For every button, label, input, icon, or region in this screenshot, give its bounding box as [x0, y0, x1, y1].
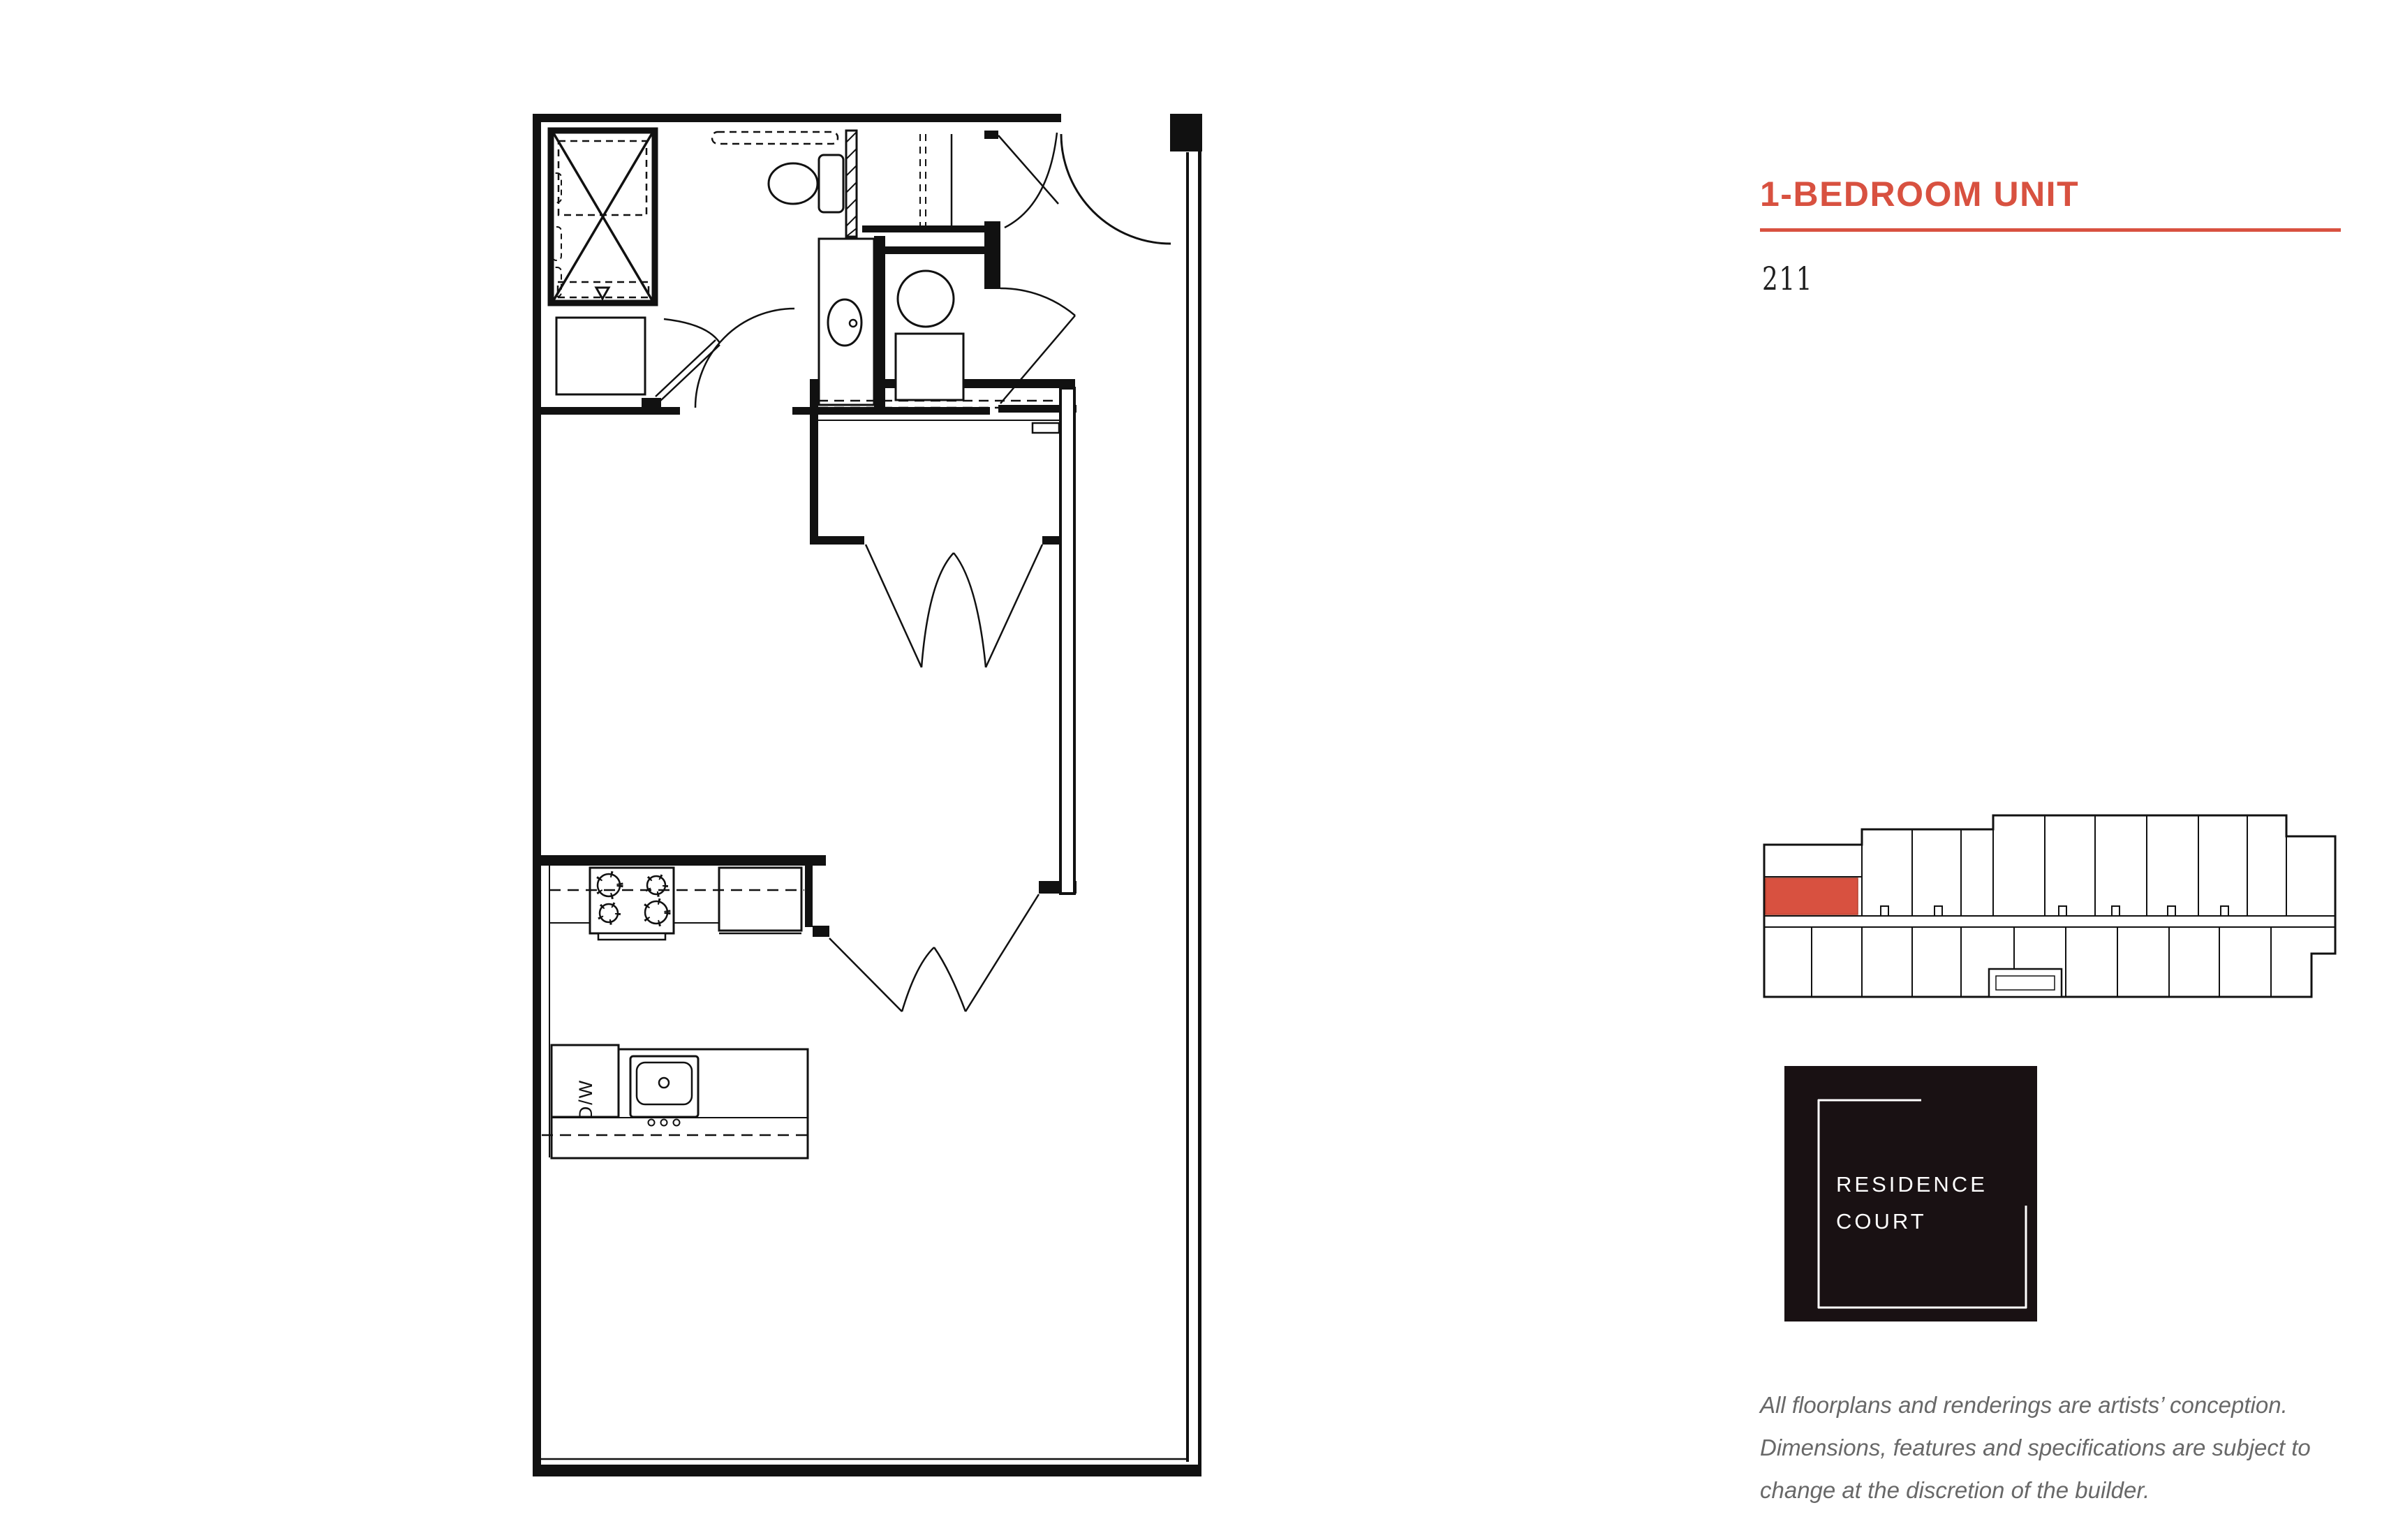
- vanity-sink: [819, 239, 874, 405]
- plumbing-wall-hatch: [846, 131, 857, 237]
- towel-bar: [712, 132, 838, 144]
- unit-number: 211: [1762, 260, 1813, 297]
- title-block: 1-BEDROOM UNIT: [1760, 176, 2343, 212]
- bath-door-arc: [695, 309, 794, 408]
- refrigerator: [719, 868, 801, 933]
- page-title: 1-BEDROOM UNIT: [1760, 176, 2343, 212]
- kitchen-sink: [630, 1056, 698, 1126]
- logo-line-1: RESIDENCE: [1836, 1172, 1988, 1197]
- kitchen-island: D/W: [542, 1045, 808, 1158]
- building-keyplan: [1759, 810, 2341, 1008]
- residence-court-logo: RESIDENCE COURT: [1784, 1066, 2037, 1321]
- bedroom-closet: [818, 401, 1059, 667]
- floorplan-sheet: D/W 1-BEDROOM UNIT 211: [0, 0, 2382, 1540]
- hall-wall: [1060, 388, 1074, 894]
- keyplan-highlight-unit: [1766, 878, 1858, 915]
- dishwasher-label: D/W: [575, 1079, 596, 1120]
- keyplan-stair: [1989, 969, 2062, 997]
- disclaimer-text: All floorplans and renderings are artist…: [1760, 1384, 2360, 1511]
- bedroom-double-doors: [829, 894, 1039, 1012]
- toilet: [769, 155, 843, 212]
- stove: [590, 868, 674, 940]
- title-underline: [1760, 228, 2341, 232]
- shower-tub: [551, 131, 655, 303]
- washer-dryer-closet: [556, 318, 720, 401]
- logo-line-2: COURT: [1836, 1209, 1927, 1234]
- disclaimer-line: change at the discretion of the builder.: [1760, 1469, 2360, 1511]
- entry-door-arc: [1061, 134, 1171, 244]
- coat-closet: [920, 133, 1058, 228]
- disclaimer-line: All floorplans and renderings are artist…: [1760, 1384, 2360, 1426]
- second-toilet: [896, 271, 963, 400]
- floorplan-drawing: D/W: [524, 98, 1222, 1487]
- disclaimer-line: Dimensions, features and specifications …: [1760, 1426, 2360, 1469]
